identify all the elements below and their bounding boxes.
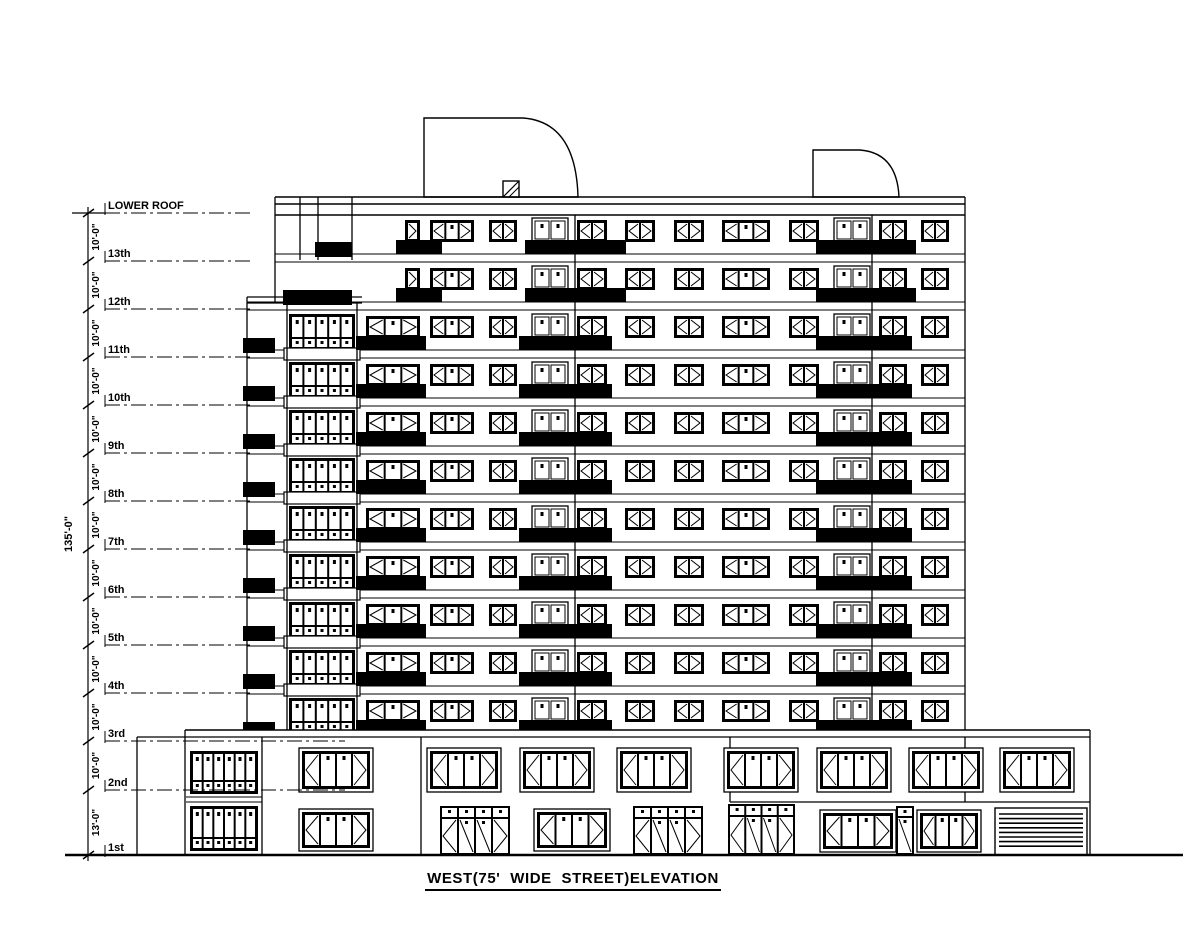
- floor-label: 13th: [108, 248, 131, 260]
- floor-dim-label: 10'-0": [91, 511, 102, 538]
- floor-label: 6th: [108, 584, 125, 596]
- overall-dim-label: 135'-0": [63, 516, 75, 552]
- floor-label: 10th: [108, 392, 131, 404]
- tower-facade: [243, 197, 965, 744]
- elevation-drawing: LOWER ROOF10'-0"13th10'-0"12th10'-0"11th…: [0, 0, 1200, 927]
- floor-dim-label: 10'-0": [91, 607, 102, 634]
- drawing-title-text: WEST(75' WIDE STREET)ELEVATION: [425, 870, 721, 891]
- base-block: [137, 730, 1090, 855]
- floor-dim-label: 10'-0": [91, 415, 102, 442]
- floor-label: 8th: [108, 488, 125, 500]
- floor-dim-label: 10'-0": [91, 703, 102, 730]
- floor-dim-label: 13'-0": [91, 809, 102, 836]
- floor-label: 5th: [108, 632, 125, 644]
- drawing-sheet: LOWER ROOF10'-0"13th10'-0"12th10'-0"11th…: [0, 0, 1200, 927]
- floor-label: 2nd: [108, 777, 128, 789]
- floor-label: 4th: [108, 680, 125, 692]
- floor-dim-label: 10'-0": [91, 655, 102, 682]
- floor-label: LOWER ROOF: [108, 200, 184, 212]
- floor-dim-label: 10'-0": [91, 752, 102, 779]
- floor-label: 12th: [108, 296, 131, 308]
- floor-dim-label: 10'-0": [91, 319, 102, 346]
- floor-dim-label: 10'-0": [91, 271, 102, 298]
- parapet-band: [275, 197, 965, 215]
- floor-dim-label: 10'-0": [91, 223, 102, 250]
- floor-label: 7th: [108, 536, 125, 548]
- floor-dim-label: 10'-0": [91, 367, 102, 394]
- floor-label: 1st: [108, 842, 124, 854]
- roof-bulkheads: [424, 118, 899, 197]
- drawing-title: WEST(75' WIDE STREET)ELEVATION: [0, 870, 1146, 891]
- floor-dim-label: 10'-0": [91, 559, 102, 586]
- floor-label: 9th: [108, 440, 125, 452]
- floor-label: 11th: [108, 344, 130, 356]
- floor-label: 3rd: [108, 728, 125, 740]
- floor-dim-label: 10'-0": [91, 463, 102, 490]
